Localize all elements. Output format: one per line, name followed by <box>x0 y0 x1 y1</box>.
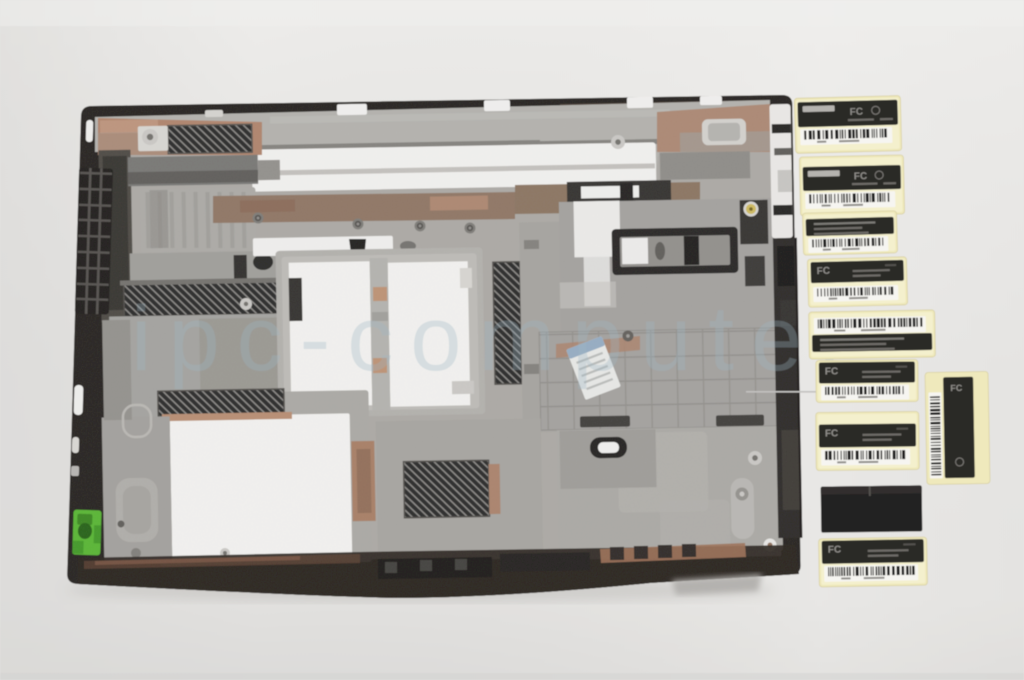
svg-text:FC: FC <box>825 428 838 439</box>
svg-text:FC: FC <box>825 366 838 377</box>
svg-text:FC: FC <box>950 383 963 393</box>
svg-text:FC: FC <box>854 171 868 182</box>
svg-text:FC: FC <box>850 107 864 118</box>
svg-text:FC: FC <box>817 266 831 277</box>
svg-text:ipc-computer: ipc-computer <box>131 288 867 390</box>
svg-text:FC: FC <box>828 545 842 556</box>
